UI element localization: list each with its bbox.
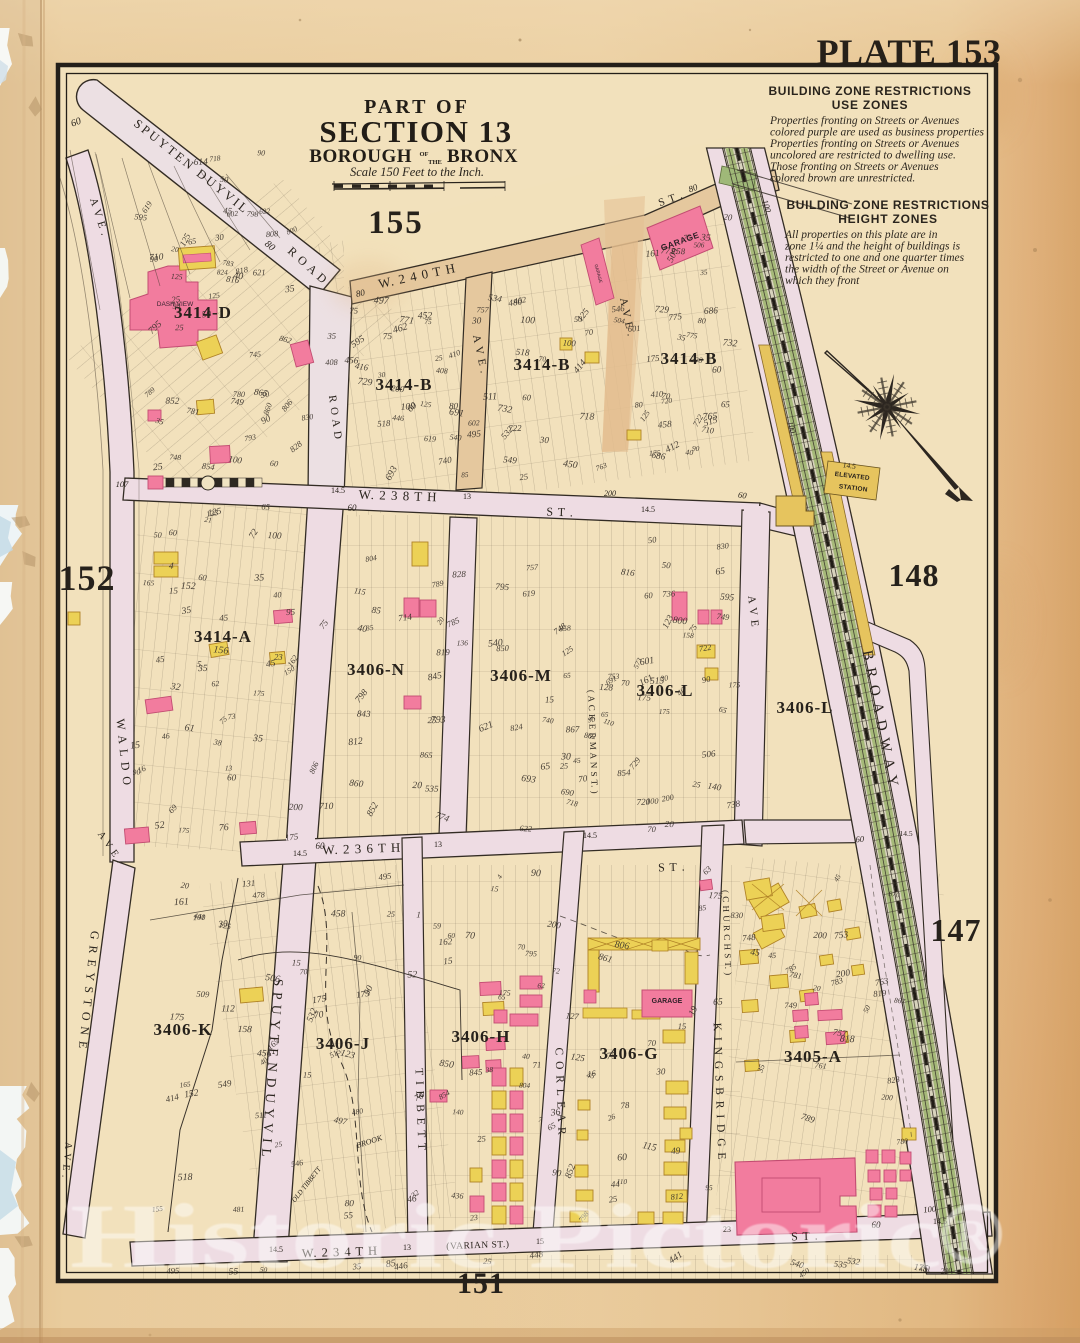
svg-text:14.5: 14.5 [331, 486, 345, 495]
svg-text:867: 867 [893, 995, 906, 1005]
svg-text:35: 35 [253, 572, 264, 584]
svg-text:52: 52 [154, 820, 165, 832]
svg-text:80: 80 [634, 400, 643, 410]
svg-text:478: 478 [252, 890, 266, 900]
svg-text:49: 49 [671, 1146, 681, 1157]
svg-text:718: 718 [209, 153, 221, 163]
svg-text:732: 732 [722, 337, 738, 349]
svg-text:90: 90 [172, 301, 181, 311]
svg-text:60: 60 [447, 932, 455, 940]
svg-text:60: 60 [198, 572, 208, 583]
svg-text:25: 25 [560, 761, 568, 770]
svg-text:70: 70 [313, 1009, 324, 1021]
svg-text:458: 458 [331, 908, 346, 919]
svg-text:720: 720 [661, 396, 673, 406]
svg-text:35: 35 [252, 733, 264, 745]
svg-text:uncolored are restricted to dw: uncolored are restricted to dwelling use… [770, 150, 956, 162]
svg-text:BUILDING ZONE RESTRICTIONS: BUILDING ZONE RESTRICTIONS [769, 84, 972, 98]
svg-text:740: 740 [542, 715, 555, 726]
svg-text:60: 60 [227, 772, 237, 782]
svg-text:175: 175 [284, 831, 299, 842]
svg-text:52: 52 [407, 969, 417, 980]
svg-text:15: 15 [490, 884, 499, 894]
svg-text:812: 812 [348, 736, 364, 749]
svg-text:511: 511 [483, 391, 498, 403]
svg-text:200: 200 [390, 383, 405, 394]
svg-text:65: 65 [563, 671, 571, 680]
svg-text:816: 816 [620, 567, 635, 579]
svg-text:691: 691 [448, 406, 464, 419]
svg-text:200: 200 [547, 919, 562, 931]
svg-text:775: 775 [686, 330, 699, 340]
svg-text:125: 125 [208, 291, 221, 301]
svg-text:845: 845 [469, 1067, 483, 1078]
svg-text:152: 152 [184, 1087, 200, 1100]
svg-text:13: 13 [225, 763, 233, 772]
svg-text:843: 843 [357, 708, 372, 718]
svg-text:850: 850 [439, 1058, 455, 1071]
svg-text:200: 200 [604, 489, 616, 498]
svg-text:540: 540 [449, 433, 461, 443]
svg-text:75: 75 [683, 233, 691, 243]
svg-text:830: 830 [730, 911, 744, 920]
svg-text:175: 175 [637, 692, 651, 702]
svg-text:Properties fronting on Streets: Properties fronting on Streets or Avenue… [769, 138, 960, 150]
svg-text:90: 90 [132, 767, 140, 776]
svg-text:745: 745 [249, 350, 261, 360]
svg-text:775: 775 [668, 311, 683, 323]
svg-text:35: 35 [364, 623, 374, 633]
svg-text:136: 136 [457, 638, 469, 647]
svg-text:622: 622 [519, 824, 532, 834]
svg-text:60: 60 [348, 503, 358, 513]
svg-text:75: 75 [349, 305, 359, 315]
svg-text:175: 175 [253, 688, 265, 698]
svg-text:828: 828 [452, 569, 467, 580]
svg-text:30: 30 [377, 370, 387, 380]
svg-text:458: 458 [657, 420, 672, 431]
svg-text:504: 504 [613, 315, 626, 326]
svg-text:175: 175 [649, 448, 661, 457]
svg-text:408: 408 [436, 366, 448, 376]
svg-text:25: 25 [692, 779, 701, 789]
svg-text:140: 140 [452, 1107, 464, 1117]
svg-text:colored purple are used as bus: colored purple are used as business prop… [770, 127, 985, 139]
svg-text:70: 70 [300, 967, 308, 976]
svg-text:15: 15 [545, 694, 555, 705]
svg-text:497: 497 [373, 295, 390, 307]
svg-text:35: 35 [326, 331, 336, 341]
svg-text:25: 25 [175, 322, 184, 332]
svg-text:25: 25 [427, 715, 437, 725]
svg-text:540: 540 [487, 637, 503, 650]
svg-text:100: 100 [193, 913, 205, 922]
svg-text:65: 65 [721, 399, 730, 409]
svg-text:808: 808 [266, 229, 279, 239]
svg-text:60: 60 [316, 841, 326, 851]
svg-text:13: 13 [434, 840, 442, 849]
svg-text:70: 70 [621, 678, 631, 688]
svg-text:158: 158 [237, 1025, 252, 1036]
svg-text:the width of the Street or Ave: the width of the Street or Avenue on [785, 264, 949, 276]
svg-text:200: 200 [940, 1266, 952, 1276]
svg-text:S T .: S T . [546, 505, 574, 520]
svg-text:100: 100 [520, 315, 535, 327]
svg-text:852: 852 [165, 397, 180, 407]
svg-text:30: 30 [655, 1066, 666, 1076]
svg-text:175: 175 [708, 891, 723, 902]
svg-text:90: 90 [257, 148, 266, 158]
svg-text:518: 518 [377, 418, 391, 429]
svg-text:45: 45 [265, 659, 276, 670]
svg-text:602: 602 [226, 209, 238, 219]
svg-text:710: 710 [319, 802, 334, 812]
svg-text:602: 602 [468, 418, 480, 427]
svg-text:30: 30 [539, 435, 550, 446]
svg-text:65: 65 [601, 710, 609, 720]
svg-text:798: 798 [246, 209, 258, 219]
svg-text:107: 107 [116, 479, 130, 489]
svg-text:Those fronting on Streets or A: Those fronting on Streets or Avenues [770, 161, 939, 173]
svg-text:158: 158 [682, 630, 694, 640]
svg-text:25: 25 [274, 1139, 283, 1149]
svg-text:175: 175 [729, 680, 741, 689]
svg-text:32: 32 [169, 681, 181, 693]
svg-text:65: 65 [715, 566, 726, 577]
svg-text:OF: OF [419, 151, 428, 158]
svg-text:40: 40 [522, 1051, 531, 1061]
svg-text:78: 78 [620, 1100, 631, 1111]
svg-text:65: 65 [713, 997, 723, 1008]
svg-text:200: 200 [288, 803, 303, 814]
svg-text:65: 65 [498, 992, 506, 1001]
svg-text:115: 115 [353, 586, 366, 597]
svg-text:100: 100 [646, 797, 658, 806]
svg-text:795: 795 [525, 949, 537, 959]
svg-text:854: 854 [201, 461, 216, 473]
svg-text:804: 804 [519, 1081, 531, 1090]
svg-text:35: 35 [676, 332, 686, 342]
svg-text:819: 819 [873, 987, 888, 998]
svg-text:Historic Pictoric: Historic Pictoric [70, 1185, 942, 1287]
svg-text:75: 75 [424, 317, 432, 326]
svg-text:14.5: 14.5 [842, 460, 856, 471]
svg-text:35: 35 [180, 605, 193, 618]
svg-text:3406-H: 3406-H [452, 1027, 511, 1046]
svg-text:408: 408 [325, 358, 339, 367]
svg-text:800: 800 [672, 615, 688, 628]
svg-text:72: 72 [552, 966, 560, 976]
svg-text:3406-L: 3406-L [777, 698, 834, 717]
svg-text:70: 70 [538, 354, 546, 363]
svg-text:20: 20 [812, 983, 821, 993]
svg-text:46: 46 [161, 731, 170, 741]
svg-text:112: 112 [221, 1003, 235, 1014]
svg-text:BUILDING ZONE RESTRICTIONS: BUILDING ZONE RESTRICTIONS [787, 198, 990, 212]
svg-text:61: 61 [184, 722, 195, 734]
svg-text:14.5: 14.5 [583, 831, 597, 840]
svg-text:200: 200 [881, 1092, 893, 1102]
svg-text:175: 175 [659, 708, 670, 716]
svg-text:819: 819 [436, 647, 450, 657]
svg-text:619: 619 [424, 434, 437, 444]
svg-text:90: 90 [551, 1167, 562, 1178]
svg-text:729: 729 [357, 376, 373, 389]
svg-text:35: 35 [699, 268, 708, 277]
svg-text:50: 50 [154, 530, 162, 539]
svg-text:3414-B: 3414-B [661, 349, 718, 368]
svg-text:60: 60 [644, 590, 654, 601]
svg-text:783: 783 [222, 258, 235, 269]
svg-text:748: 748 [742, 932, 757, 943]
svg-text:60: 60 [712, 365, 722, 375]
svg-text:761: 761 [814, 1061, 827, 1071]
svg-text:BRONX: BRONX [447, 146, 518, 167]
svg-text:Scale 150 Feet to the Inch.: Scale 150 Feet to the Inch. [350, 165, 484, 179]
svg-text:495: 495 [378, 870, 393, 882]
svg-text:718: 718 [579, 411, 594, 423]
svg-text:771: 771 [660, 246, 675, 257]
svg-text:495: 495 [467, 429, 482, 440]
svg-text:830: 830 [301, 412, 314, 423]
svg-text:100: 100 [400, 401, 415, 413]
svg-text:36: 36 [549, 1107, 561, 1119]
svg-text:13: 13 [463, 492, 471, 501]
svg-text:45: 45 [768, 951, 776, 960]
svg-text:65: 65 [187, 236, 196, 246]
svg-text:76: 76 [218, 822, 229, 834]
svg-text:75: 75 [383, 332, 393, 342]
svg-text:595: 595 [134, 211, 148, 222]
svg-text:Properties fronting on Streets: Properties fronting on Streets or Avenue… [769, 115, 960, 127]
svg-text:131: 131 [242, 878, 256, 889]
svg-text:736: 736 [662, 588, 676, 599]
svg-text:865: 865 [253, 387, 268, 399]
svg-text:14.5: 14.5 [899, 829, 912, 838]
svg-text:518: 518 [177, 1172, 192, 1184]
svg-text:161: 161 [174, 896, 189, 908]
svg-text:40: 40 [273, 590, 282, 600]
svg-text:50: 50 [201, 308, 212, 319]
svg-text:125: 125 [171, 272, 183, 282]
svg-text:3414-A: 3414-A [194, 627, 252, 646]
svg-text:85: 85 [698, 903, 707, 913]
svg-text:65: 65 [261, 501, 270, 511]
svg-text:38: 38 [484, 1065, 494, 1075]
svg-text:zone 1¼ and the height of buil: zone 1¼ and the height of buildings is [784, 241, 961, 253]
svg-text:518: 518 [515, 347, 530, 358]
svg-text:546: 546 [611, 303, 626, 314]
svg-text:757: 757 [526, 563, 539, 573]
svg-text:70: 70 [465, 930, 476, 942]
svg-text:25: 25 [434, 353, 443, 363]
svg-text:45: 45 [586, 1070, 595, 1080]
svg-text:757: 757 [477, 305, 490, 314]
svg-text:175: 175 [178, 826, 190, 835]
svg-text:729: 729 [654, 305, 669, 316]
svg-text:749: 749 [784, 1001, 797, 1010]
svg-text:148: 148 [889, 557, 940, 593]
svg-text:806: 806 [614, 939, 630, 952]
svg-text:1: 1 [416, 909, 421, 919]
svg-text:100: 100 [267, 530, 282, 541]
svg-text:62: 62 [537, 981, 545, 990]
svg-text:25: 25 [387, 909, 396, 919]
svg-text:W. 2 3 8 T H: W. 2 3 8 T H [358, 487, 437, 505]
svg-text:3405-A: 3405-A [784, 1047, 842, 1066]
svg-text:595: 595 [720, 592, 735, 603]
svg-text:HEIGHT ZONES: HEIGHT ZONES [838, 212, 938, 226]
svg-text:127: 127 [565, 1010, 580, 1021]
svg-text:50: 50 [574, 315, 583, 324]
svg-text:155: 155 [368, 205, 424, 241]
svg-text:506: 506 [701, 748, 716, 760]
svg-text:62: 62 [211, 679, 220, 689]
svg-text:3406-M: 3406-M [490, 666, 552, 685]
svg-text:45: 45 [573, 756, 581, 765]
svg-text:R: R [956, 1211, 989, 1260]
svg-text:60: 60 [617, 1152, 628, 1164]
svg-text:20: 20 [412, 780, 422, 791]
svg-text:686: 686 [704, 306, 719, 317]
svg-text:GARAGE: GARAGE [652, 998, 683, 1005]
svg-text:45: 45 [219, 612, 229, 623]
svg-text:50: 50 [661, 560, 671, 571]
svg-text:161: 161 [645, 249, 660, 260]
svg-text:14.5: 14.5 [293, 849, 307, 858]
svg-text:175: 175 [169, 1012, 184, 1024]
svg-text:535: 535 [425, 783, 439, 793]
svg-text:which they front: which they front [785, 275, 860, 287]
svg-text:867: 867 [566, 724, 580, 734]
svg-text:870: 870 [888, 889, 900, 900]
svg-text:753: 753 [834, 930, 850, 942]
svg-text:25: 25 [152, 461, 163, 473]
svg-text:71: 71 [532, 1059, 542, 1070]
svg-text:748: 748 [169, 452, 181, 462]
svg-text:749: 749 [230, 396, 245, 408]
svg-text:622: 622 [259, 207, 271, 216]
svg-text:765: 765 [702, 411, 717, 423]
svg-text:75: 75 [606, 1050, 617, 1062]
svg-text:90: 90 [531, 868, 542, 880]
svg-text:3406-N: 3406-N [347, 660, 405, 679]
svg-text:200: 200 [813, 930, 828, 941]
svg-text:30: 30 [659, 673, 669, 683]
svg-text:59: 59 [433, 921, 442, 930]
svg-text:125: 125 [420, 399, 432, 409]
svg-text:38: 38 [212, 737, 222, 747]
svg-text:780: 780 [896, 1136, 909, 1146]
svg-text:All properties on this plate a: All properties on this plate are in [784, 229, 938, 241]
svg-text:175: 175 [312, 994, 328, 1006]
svg-text:35: 35 [283, 283, 295, 295]
svg-text:15: 15 [292, 957, 302, 967]
svg-text:15: 15 [129, 740, 140, 752]
svg-text:85: 85 [371, 606, 382, 617]
svg-text:20: 20 [723, 212, 733, 223]
svg-text:35: 35 [699, 232, 711, 244]
svg-text:15: 15 [443, 955, 454, 966]
svg-text:156: 156 [213, 644, 229, 657]
svg-text:804: 804 [365, 553, 378, 564]
svg-text:23: 23 [274, 652, 283, 662]
svg-text:colored brown are unrestricted: colored brown are unrestricted. [770, 173, 915, 185]
svg-text:15: 15 [303, 1071, 311, 1080]
svg-text:152: 152 [181, 581, 196, 592]
svg-text:90: 90 [692, 444, 700, 454]
svg-text:14.5: 14.5 [641, 505, 655, 514]
svg-text:854: 854 [617, 767, 631, 778]
svg-text:830: 830 [716, 541, 730, 552]
svg-text:100: 100 [562, 337, 576, 348]
svg-text:BOROUGH: BOROUGH [309, 146, 412, 167]
svg-text:446: 446 [392, 413, 405, 423]
svg-text:15: 15 [169, 585, 179, 595]
svg-text:15: 15 [678, 1021, 687, 1031]
svg-text:619: 619 [522, 589, 536, 599]
svg-text:749: 749 [716, 611, 730, 622]
svg-text:60: 60 [855, 834, 865, 845]
svg-text:509: 509 [196, 989, 210, 1000]
svg-text:85: 85 [461, 471, 469, 480]
svg-text:614: 614 [194, 157, 209, 168]
svg-text:30: 30 [471, 316, 482, 326]
svg-text:60: 60 [522, 392, 532, 403]
svg-text:25: 25 [477, 1133, 487, 1143]
svg-text:restricted to one and one quar: restricted to one and one quarter times [785, 252, 965, 264]
svg-text:70: 70 [647, 824, 656, 834]
svg-text:USE ZONES: USE ZONES [832, 98, 909, 112]
svg-text:70: 70 [647, 1038, 657, 1048]
svg-text:W. 2 3 6 T H: W. 2 3 6 T H [322, 840, 401, 858]
svg-text:860: 860 [349, 779, 364, 790]
svg-text:90: 90 [588, 716, 596, 725]
svg-text:30: 30 [213, 232, 225, 243]
svg-text:80: 80 [697, 316, 706, 326]
svg-text:175: 175 [646, 353, 661, 364]
svg-text:73: 73 [227, 712, 236, 722]
svg-text:693: 693 [521, 773, 537, 786]
svg-text:20: 20 [665, 819, 675, 829]
svg-text:549: 549 [503, 454, 518, 465]
svg-text:865: 865 [420, 750, 433, 760]
svg-text:795: 795 [495, 581, 510, 592]
svg-text:SECTION 13: SECTION 13 [319, 114, 512, 149]
svg-text:722: 722 [698, 643, 712, 654]
svg-text:90: 90 [353, 953, 361, 962]
svg-text:450: 450 [562, 458, 578, 471]
svg-text:147: 147 [931, 912, 982, 948]
svg-text:65: 65 [540, 761, 551, 773]
svg-text:95: 95 [286, 607, 296, 617]
svg-text:45: 45 [750, 947, 761, 959]
svg-text:S T .: S T . [658, 860, 686, 875]
svg-text:710: 710 [149, 252, 164, 263]
svg-text:714: 714 [398, 612, 413, 624]
svg-text:601: 601 [628, 324, 641, 334]
svg-text:125: 125 [218, 921, 231, 932]
svg-text:690: 690 [690, 355, 704, 365]
svg-text:165: 165 [143, 578, 155, 588]
svg-text:862: 862 [583, 731, 596, 742]
svg-text:511: 511 [255, 1111, 267, 1121]
svg-text:621: 621 [253, 267, 266, 277]
